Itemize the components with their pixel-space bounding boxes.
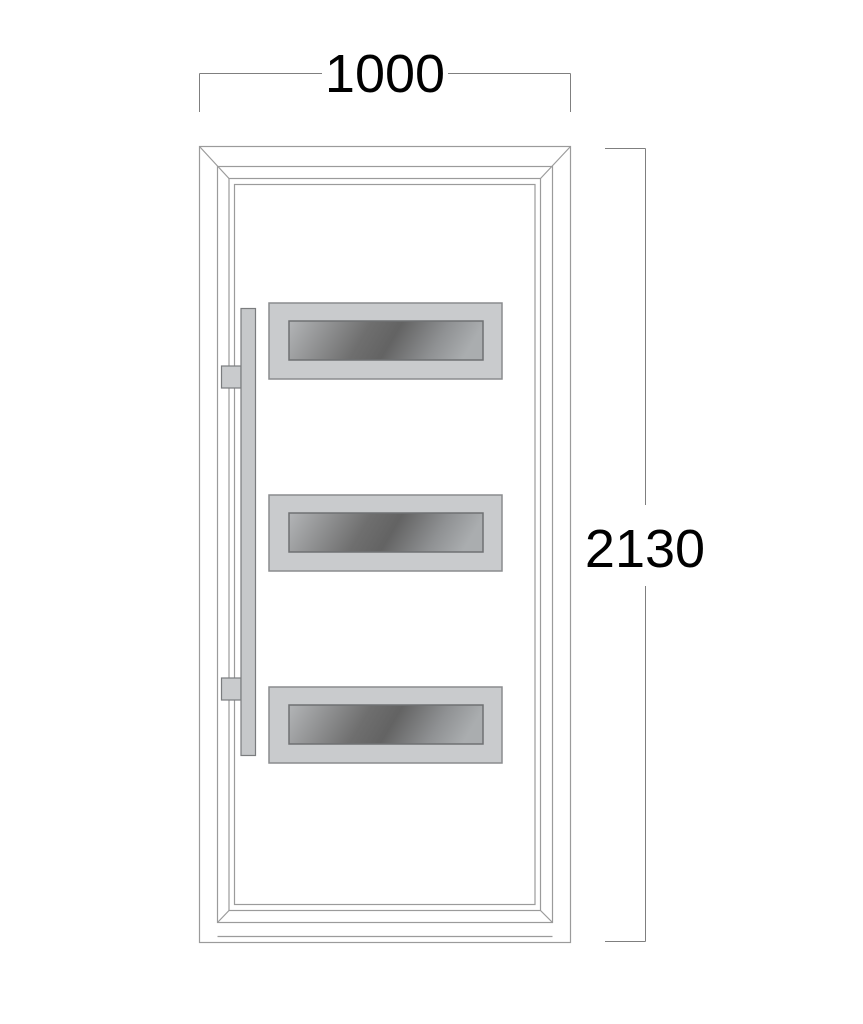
height-dimension-label: 2130 [585, 519, 705, 579]
width-dimension: 1000 [200, 44, 571, 112]
glass-panel-middle-glass [289, 513, 483, 552]
handle-mount-top [222, 366, 242, 388]
handle-bar [241, 309, 256, 756]
width-dimension-label: 1000 [325, 44, 445, 104]
glass-panel-bottom-glass [289, 705, 483, 744]
door-technical-drawing: 1000 2130 [0, 0, 863, 1024]
glass-panel-top [269, 303, 502, 379]
handle-mount-bottom [222, 678, 242, 700]
glass-panel-bottom [269, 687, 502, 763]
glass-panel-top-glass [289, 321, 483, 360]
height-dimension: 2130 [585, 149, 705, 942]
drawing-svg: 1000 2130 [0, 0, 863, 1024]
glass-panel-middle [269, 495, 502, 571]
